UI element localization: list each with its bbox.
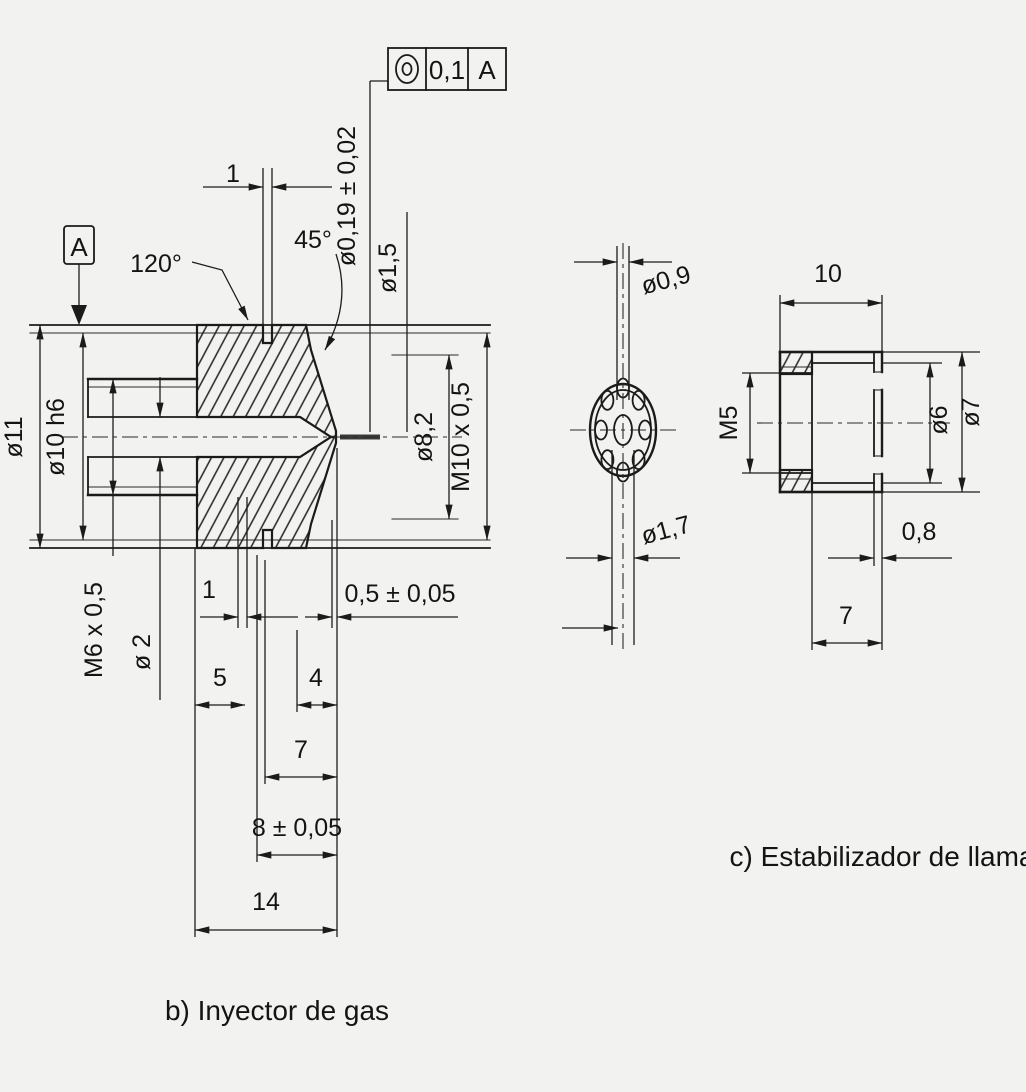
dim-len-14: 14: [195, 888, 337, 930]
stabilizer-front-view: ø0,9 ø1,7: [562, 243, 694, 650]
orifice-length-value: 0,5 ± 0,05: [344, 580, 455, 608]
counterbore-dia-label: ø1,5: [374, 243, 402, 293]
groove-width-value: 1: [226, 160, 240, 188]
injector-view: A 0,1 A ø0,19 ± 0,02 ø1,5: [0, 48, 506, 1026]
dim-len-8: 8 ± 0,05: [252, 814, 342, 855]
datum-triangle: [71, 305, 87, 325]
injector-bore: [62, 417, 462, 457]
injector-body-lower-section: [197, 437, 336, 548]
side-inner-dia-value: ø6: [925, 405, 953, 434]
dim-orifice-length: 0,5 ± 0,05: [305, 580, 458, 617]
side-thread-value: M5: [715, 406, 743, 441]
len-8-value: 8 ± 0,05: [252, 814, 342, 842]
outer-dia-value: ø11: [0, 416, 28, 457]
len-4-value: 4: [309, 664, 323, 692]
dim-len-5: 5: [195, 664, 245, 705]
side-outer-dia-value: ø7: [957, 397, 985, 426]
dim-thread-m6: M6 x 0,5: [80, 379, 113, 678]
dim-len-4: 4: [297, 664, 337, 705]
dim-side-len-10: 10: [780, 260, 882, 352]
side-len-7-value: 7: [839, 602, 853, 630]
datum-label: A: [70, 232, 88, 262]
thread-bore-dia-value: ø8,2: [410, 412, 438, 462]
thread-left-value: M6 x 0,5: [80, 582, 108, 678]
stabilizer-side-view: 10 M5 ø6 ø7 0,8: [715, 260, 1026, 872]
feature-control-frame: 0,1 A: [370, 48, 506, 432]
body-dia-value: ø10 h6: [42, 398, 70, 476]
cone-angle-value: 120°: [130, 250, 182, 278]
hole-dia-value: ø0,9: [638, 260, 694, 300]
thread-right-value: M10 x 0,5: [447, 382, 475, 492]
side-hatch-top: [780, 352, 812, 374]
dim-side-len-7: 7: [812, 492, 882, 650]
injector-caption: b) Inyector de gas: [165, 995, 389, 1026]
fcf-tolerance: 0,1: [429, 55, 465, 85]
dim-hole-dia-0-9: ø0,9: [574, 246, 694, 400]
dim-bore-dia-2: ø 2: [128, 377, 160, 700]
injector-body-upper-section: [197, 325, 336, 437]
dim-cone-angle: 120°: [130, 250, 248, 320]
orifice-dia-label: ø0,19 ± 0,02: [333, 126, 361, 266]
dim-outer-dia-11: ø11: [0, 325, 40, 548]
dim-thread-m10: M10 x 0,5: [447, 333, 487, 540]
concentricity-icon: [396, 55, 418, 83]
technical-drawing-page: A 0,1 A ø0,19 ± 0,02 ø1,5: [0, 0, 1026, 1092]
center-hole-dia-value: ø1,7: [638, 510, 694, 550]
side-wall-value: 0,8: [902, 518, 937, 546]
fcf-datum-ref: A: [478, 55, 496, 85]
chamfer-angle-value: 45°: [294, 226, 332, 254]
dim-undercut-1: 1: [200, 576, 298, 617]
drawing-canvas: A 0,1 A ø0,19 ± 0,02 ø1,5: [0, 0, 1026, 1092]
datum-a-flag: A: [64, 226, 94, 325]
len-5-value: 5: [213, 664, 227, 692]
len-7-value: 7: [294, 736, 308, 764]
side-len-10-value: 10: [814, 260, 842, 288]
dim-len-7: 7: [265, 736, 337, 777]
undercut-value: 1: [202, 576, 216, 604]
len-14-value: 14: [252, 888, 280, 916]
bore-dia-value: ø 2: [128, 634, 156, 670]
stabilizer-caption: c) Estabilizador de llama: [729, 841, 1026, 872]
